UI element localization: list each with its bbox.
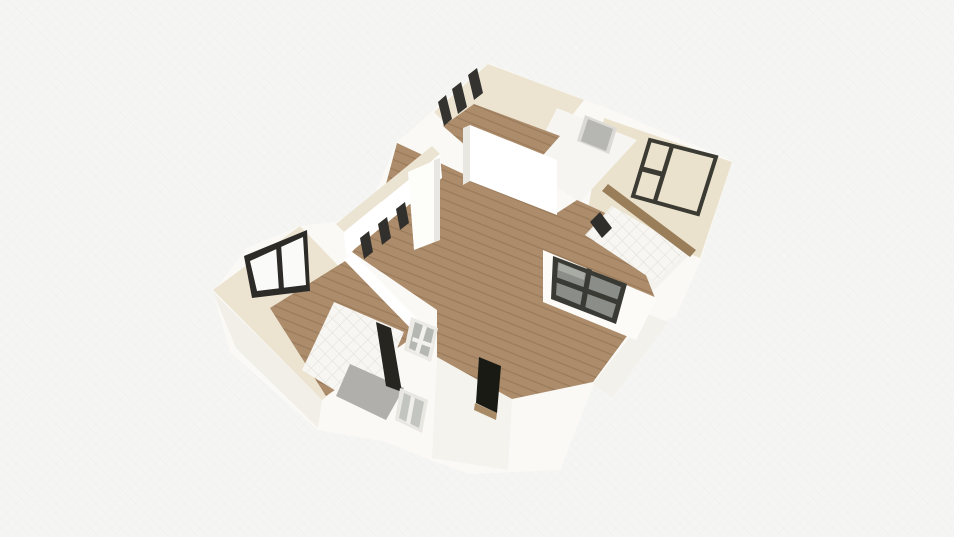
wall-pillar-shade <box>434 158 440 242</box>
floorplan-3d-render <box>0 0 954 537</box>
entry-black-door <box>476 357 501 413</box>
center-wall-shade-edge <box>463 125 470 185</box>
floorplan-viewport[interactable] <box>0 0 954 537</box>
